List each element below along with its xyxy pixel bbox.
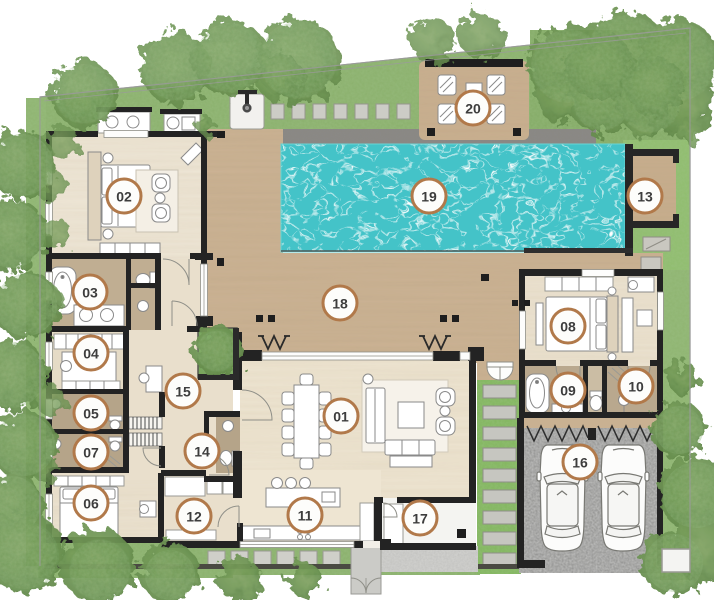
- svg-text:02: 02: [116, 189, 132, 205]
- svg-text:12: 12: [186, 509, 202, 525]
- svg-text:10: 10: [628, 379, 644, 395]
- svg-text:15: 15: [175, 384, 191, 400]
- svg-text:18: 18: [332, 296, 348, 312]
- svg-text:09: 09: [560, 383, 576, 399]
- svg-text:13: 13: [637, 189, 653, 205]
- svg-text:01: 01: [333, 409, 349, 425]
- svg-text:03: 03: [82, 285, 98, 301]
- svg-text:16: 16: [572, 455, 588, 471]
- svg-text:08: 08: [560, 319, 576, 335]
- svg-text:04: 04: [83, 346, 99, 362]
- svg-text:11: 11: [298, 508, 313, 524]
- svg-text:17: 17: [412, 511, 428, 527]
- svg-text:05: 05: [83, 406, 99, 422]
- svg-text:19: 19: [421, 189, 437, 205]
- svg-text:14: 14: [194, 444, 210, 460]
- svg-text:07: 07: [83, 445, 99, 461]
- svg-text:06: 06: [83, 496, 99, 512]
- svg-text:20: 20: [465, 101, 481, 117]
